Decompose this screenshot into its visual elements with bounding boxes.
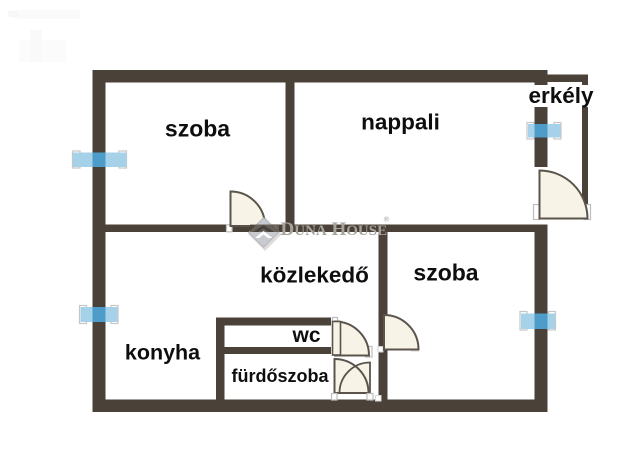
svg-text:konyha: konyha xyxy=(125,341,201,365)
svg-text:fürdőszoba: fürdőszoba xyxy=(232,366,330,386)
svg-text:wc: wc xyxy=(291,324,320,347)
svg-text:szoba: szoba xyxy=(413,260,478,286)
svg-text:erkély: erkély xyxy=(528,83,594,108)
svg-text:szoba: szoba xyxy=(165,115,230,141)
svg-text:nappali: nappali xyxy=(361,110,440,135)
svg-text:®: ® xyxy=(384,215,390,224)
svg-text:DUNA HOUSE: DUNA HOUSE xyxy=(281,219,388,240)
svg-text:közlekedő: közlekedő xyxy=(260,263,369,288)
